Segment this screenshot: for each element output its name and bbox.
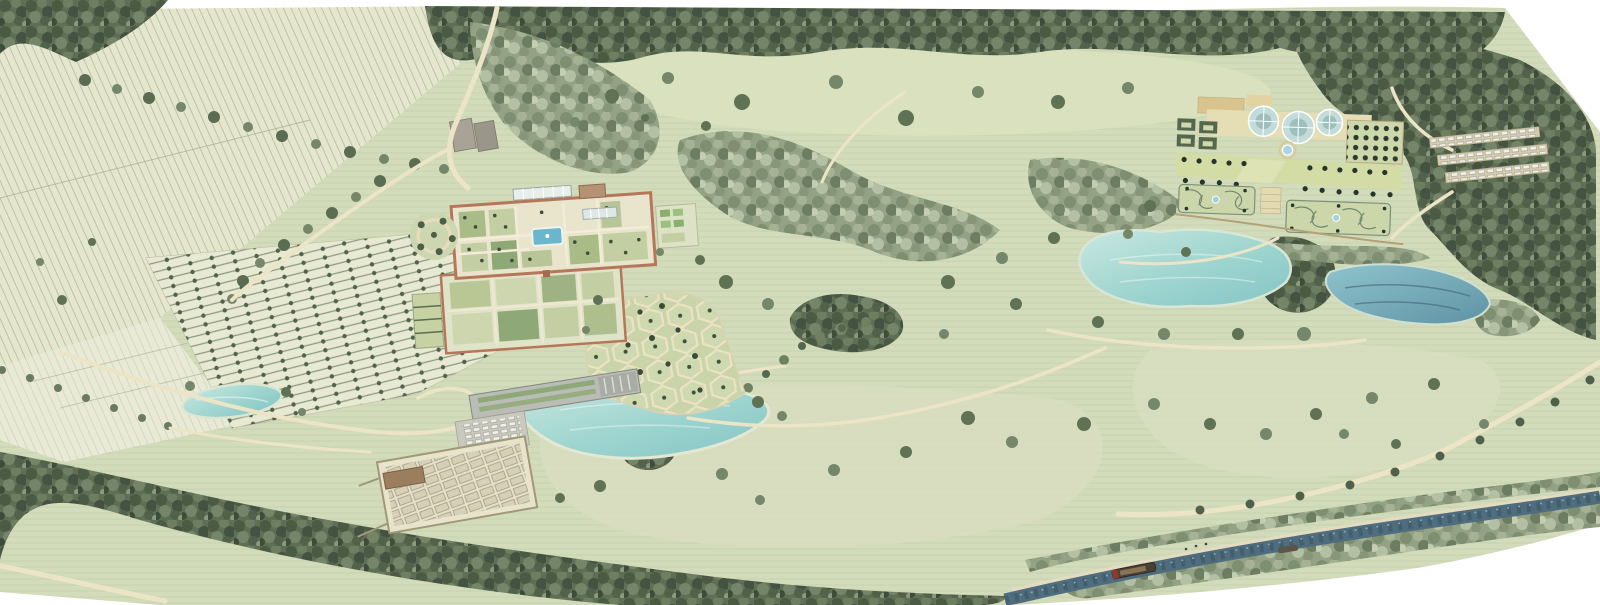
- parterre-west: [1178, 184, 1255, 215]
- glass-dome-1: [1248, 106, 1279, 137]
- south-gate: [543, 270, 550, 277]
- glass-dome-3: [1316, 109, 1343, 136]
- inner-glasshouse: [583, 207, 618, 219]
- east-garden-plots: [656, 204, 699, 249]
- old-barn: [579, 184, 606, 199]
- terrace-fountain: [1282, 145, 1292, 155]
- bosquet-grove: [1346, 120, 1403, 164]
- west-lake-water: [1080, 230, 1291, 307]
- garden-terraces: [412, 293, 444, 349]
- glass-dome-2: [1282, 111, 1315, 144]
- masterplan-illustration: Illustrated estate masterplan — aerial w…: [0, 0, 1600, 605]
- nursery-plot-b: [474, 120, 499, 151]
- central-steps: [1260, 187, 1281, 214]
- west-lake: [1080, 230, 1291, 307]
- masterplan-canvas: [0, 0, 1600, 605]
- service-yard-b: [1246, 95, 1272, 108]
